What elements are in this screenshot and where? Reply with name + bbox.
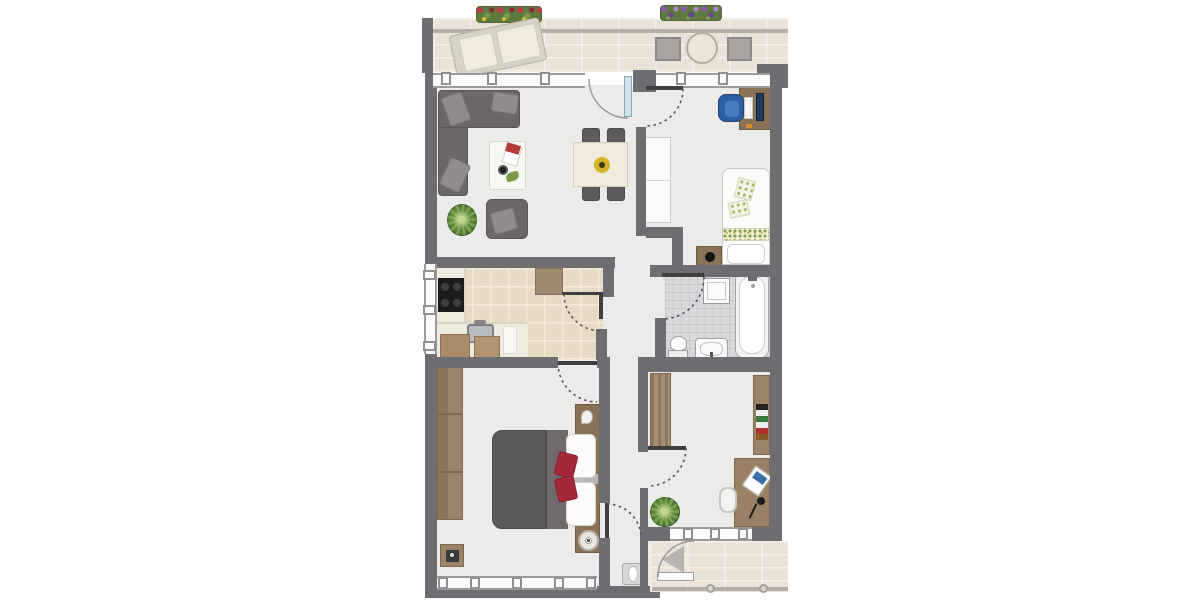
tub-drain — [751, 284, 755, 288]
bedroom2-wardrobe — [645, 137, 671, 223]
balcony-bottom-floor — [650, 541, 788, 592]
bedroom2-door-leaf[interactable] — [646, 86, 683, 90]
bedroom2-lower-wall-h — [646, 227, 683, 238]
window-frame — [718, 72, 728, 85]
balcony-chair — [655, 37, 681, 61]
tub-faucet — [748, 277, 757, 281]
kitchen-door-pillar — [603, 268, 614, 297]
study-window-stub — [648, 527, 670, 541]
bathroom-left-wall — [655, 318, 666, 360]
bedroom1-stool — [440, 544, 464, 567]
study-door-leaf[interactable] — [648, 446, 686, 450]
study-chair — [719, 487, 737, 513]
bathtub — [735, 272, 769, 358]
study-left-wall-upper — [638, 371, 648, 452]
laptop — [742, 465, 772, 496]
bedroom1-right-wall-upper — [599, 368, 610, 503]
outer-wall-right — [770, 85, 782, 541]
living-bedroom2-wall — [636, 127, 646, 236]
bedroom1-top-wall — [437, 357, 558, 368]
books — [756, 404, 768, 440]
study-desk — [734, 458, 770, 527]
kitchen-top-wall — [425, 257, 615, 268]
window-frame — [470, 577, 480, 589]
toilet — [670, 336, 687, 351]
study-open-wardrobe — [650, 373, 671, 448]
bedroom1-right-wall-lower — [599, 538, 610, 598]
window-frame — [554, 577, 564, 589]
desk-accessory — [746, 124, 752, 128]
cutting-board — [474, 336, 500, 358]
railing-post — [706, 584, 715, 593]
floor-plan — [0, 0, 1200, 600]
balcony-round-table — [686, 32, 718, 64]
window-frame — [423, 341, 436, 351]
washing-machine — [703, 278, 730, 304]
bed-pillow — [727, 244, 765, 264]
kitchen-door-threshold — [562, 292, 603, 295]
coffee-table — [489, 141, 526, 190]
bed-cushion — [728, 199, 751, 219]
window-frame — [423, 270, 436, 280]
kitchen-cabinet — [535, 268, 563, 295]
nightstand-lamp — [705, 252, 715, 262]
living-room-plant — [447, 204, 477, 236]
bedroom2-lower-wall-v — [672, 238, 683, 268]
lounger-cushion — [495, 23, 541, 65]
living-room-window — [433, 73, 585, 88]
window-frame — [683, 528, 693, 540]
balcony-left-wall — [422, 18, 433, 73]
window-frame — [438, 577, 448, 589]
sink-handle — [474, 320, 486, 324]
study-bookshelf — [753, 375, 770, 455]
bedroom1-door-leaf[interactable] — [558, 361, 597, 365]
dining-table — [573, 142, 628, 187]
study-plant — [650, 497, 680, 527]
study-left-wall-lower — [640, 488, 648, 598]
window-frame — [586, 577, 596, 589]
bedroom1-hall-door-leaf[interactable] — [605, 503, 609, 538]
monitor — [756, 93, 764, 121]
window-frame — [487, 72, 497, 85]
headboard-decoration — [581, 410, 593, 424]
study-corner-wall — [752, 527, 782, 541]
window-frame — [423, 305, 436, 315]
bed-floral-runner — [723, 228, 769, 241]
bedroom2-nightstand — [696, 246, 722, 266]
living-balcony-door-leaf[interactable] — [624, 76, 632, 117]
cooktop — [438, 278, 464, 312]
window-frame — [710, 528, 720, 540]
window-frame — [738, 528, 748, 540]
bathroom-door-leaf[interactable] — [662, 273, 704, 277]
office-chair-blue — [718, 94, 744, 122]
bed-cushion — [734, 177, 757, 201]
window-frame — [512, 577, 522, 589]
flower-box-purple — [660, 5, 722, 21]
desk-lamp-arm — [749, 503, 758, 518]
window-frame — [441, 72, 451, 85]
kitchen-right-wall — [596, 329, 607, 360]
bedroom1-wardrobe — [437, 360, 463, 520]
bedroom1-door-pillar — [597, 357, 610, 368]
mid-wall — [638, 357, 772, 372]
railing-post — [759, 584, 768, 593]
cutting-board — [440, 334, 470, 358]
bedside-lamp — [578, 530, 599, 551]
balcony-chair — [727, 37, 752, 61]
window-frame — [540, 72, 550, 85]
window-frame — [676, 72, 686, 85]
kitchen-door-leaf[interactable] — [599, 294, 603, 319]
desk-lamp — [757, 497, 765, 505]
keyboard — [744, 97, 753, 119]
lounger-cushion — [458, 32, 498, 72]
kitchen-towel — [503, 326, 517, 354]
fruit-bowl — [594, 157, 610, 173]
sofa-cushion — [491, 91, 520, 114]
bedroom2-bed — [722, 168, 770, 265]
balcony-door-leaf[interactable] — [657, 572, 694, 581]
